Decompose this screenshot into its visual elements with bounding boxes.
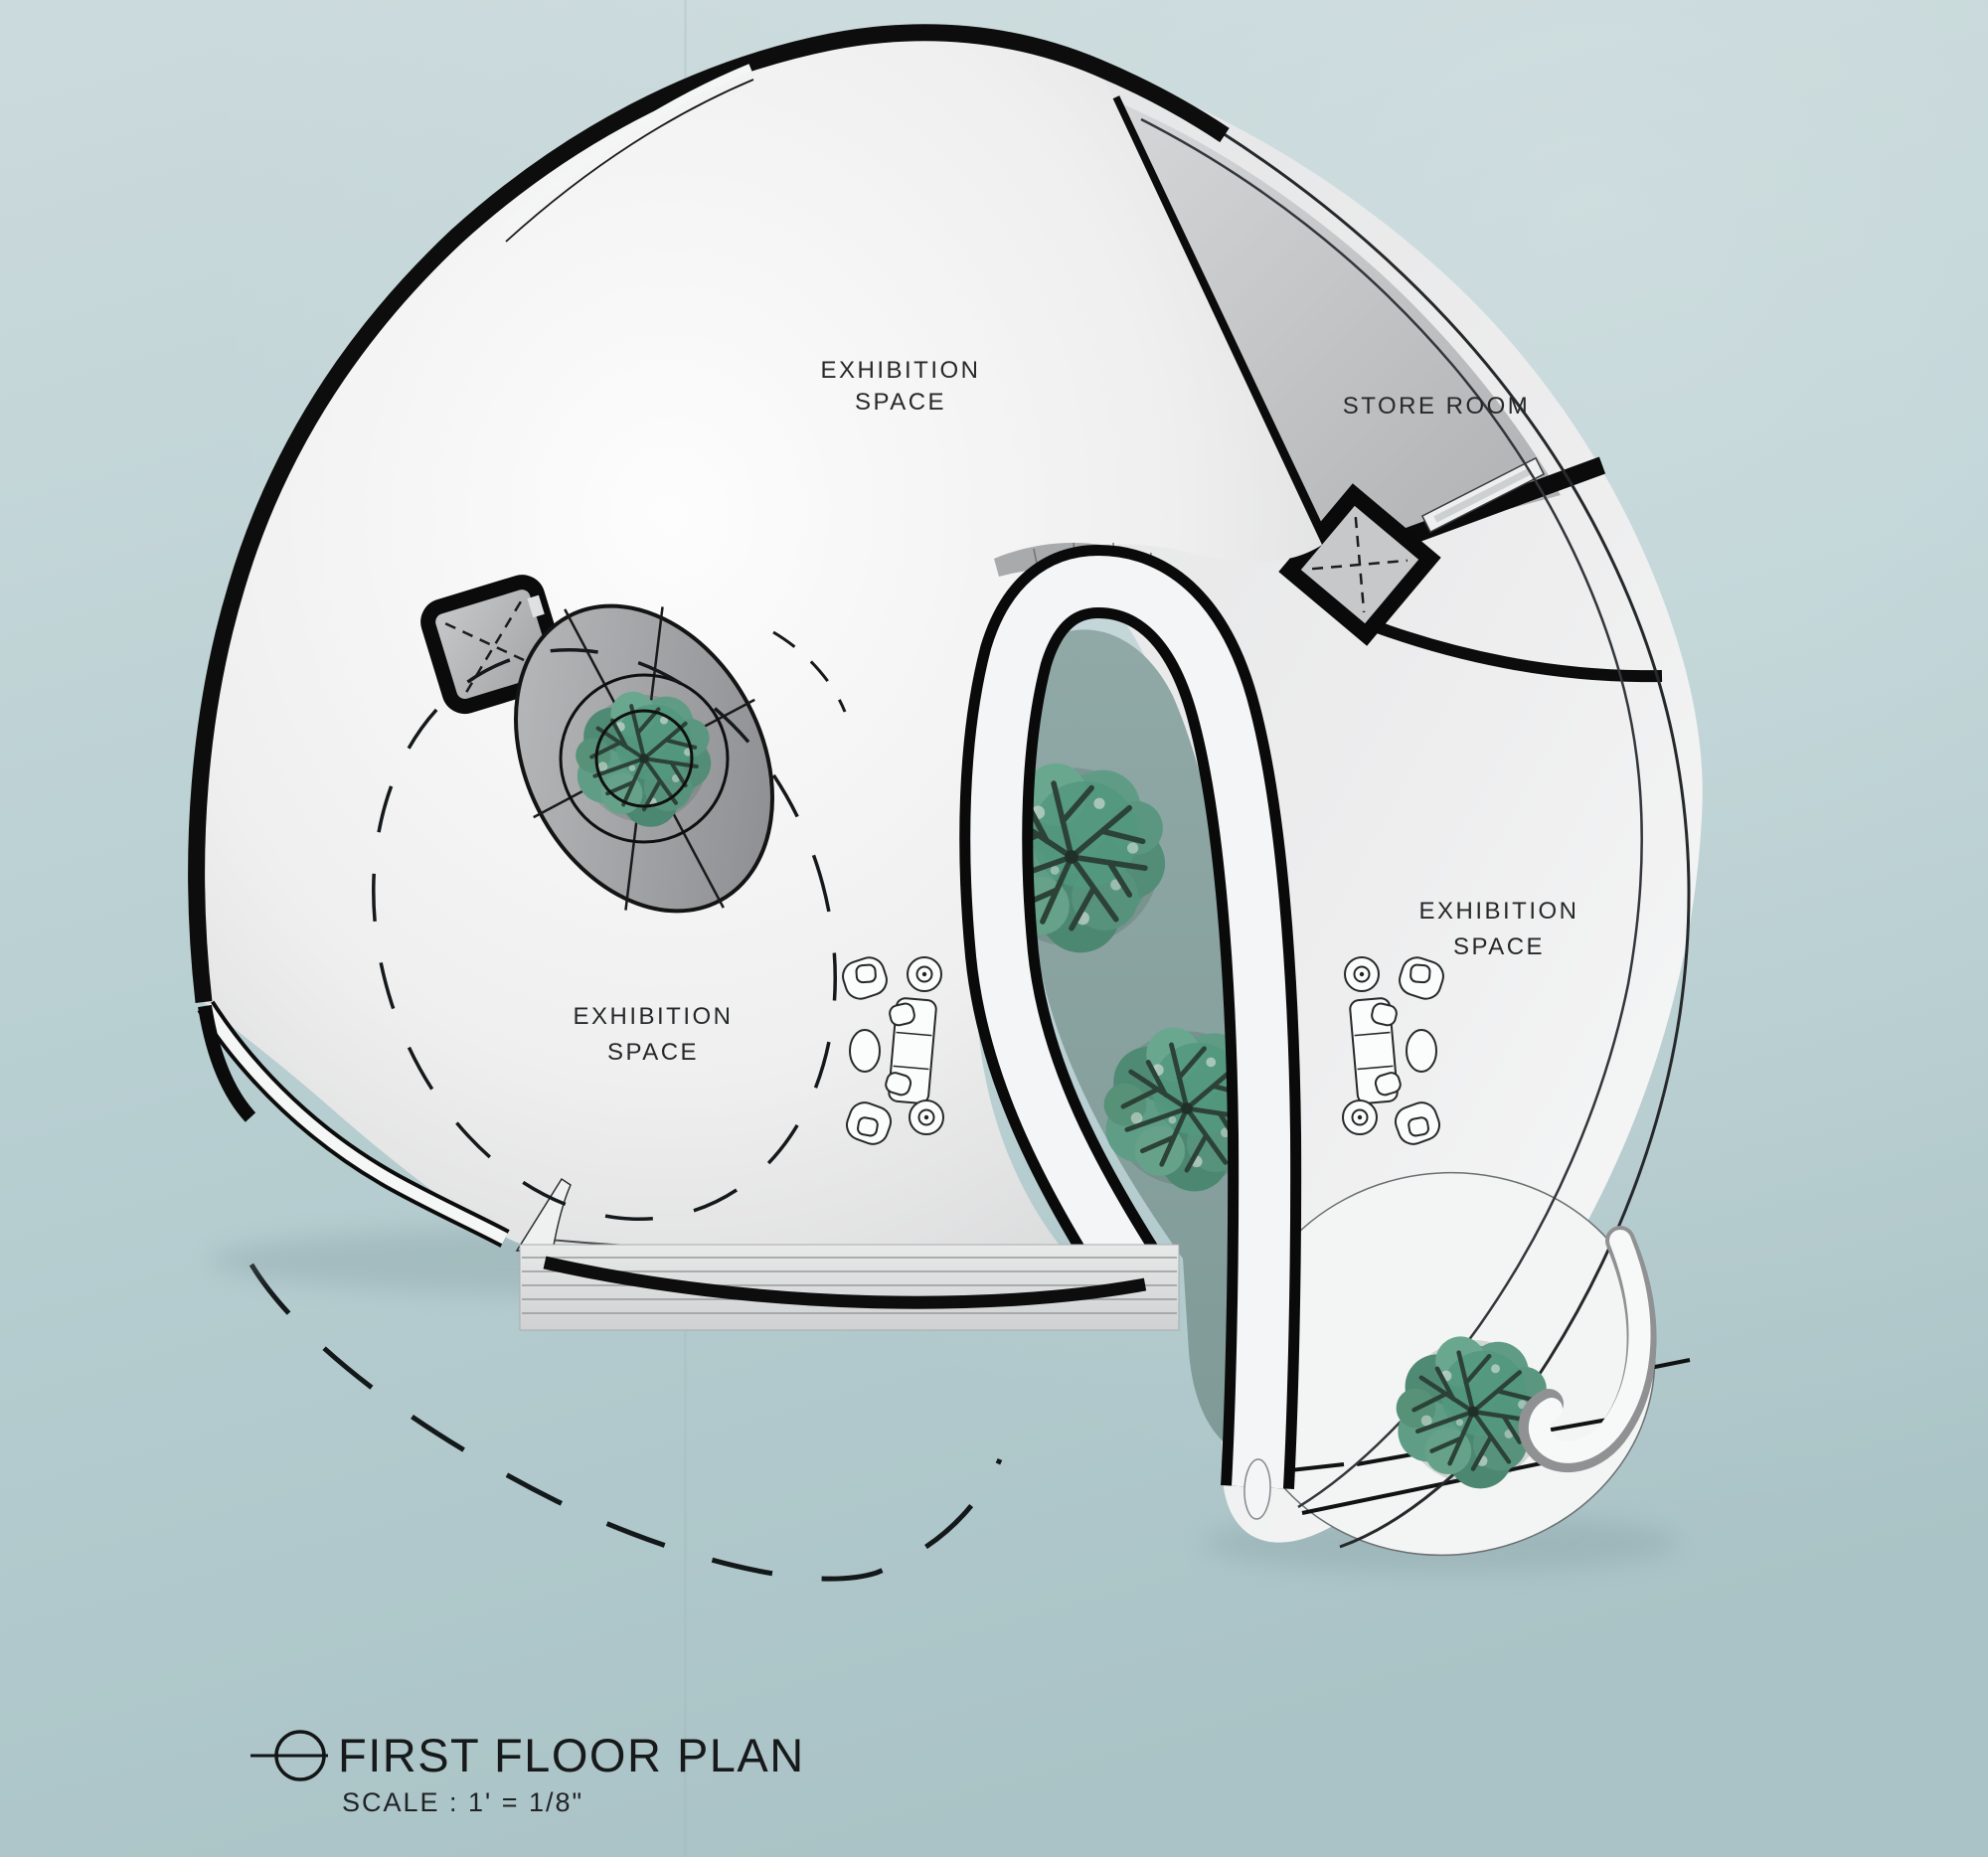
room-label-line: SPACE [1453, 933, 1545, 960]
room-label-line: EXHIBITION [820, 357, 980, 384]
entrance-steps [520, 1245, 1179, 1330]
floor-plan-canvas: EXHIBITION SPACE STORE ROOM EXHIBITION S… [0, 0, 1988, 1857]
room-label-line: STORE ROOM [1343, 393, 1531, 420]
room-label-line: EXHIBITION [573, 1003, 733, 1030]
room-label-line: EXHIBITION [1418, 898, 1578, 925]
store-room-label: STORE ROOM [1343, 393, 1531, 420]
room-label-line: SPACE [607, 1039, 699, 1066]
room-label-line: SPACE [855, 389, 946, 416]
drawing-title: FIRST FLOOR PLAN [338, 1729, 805, 1781]
floor-plan-sheet: EXHIBITION SPACE STORE ROOM EXHIBITION S… [0, 0, 1988, 1857]
drawing-scale: SCALE : 1' = 1/8" [342, 1787, 583, 1817]
